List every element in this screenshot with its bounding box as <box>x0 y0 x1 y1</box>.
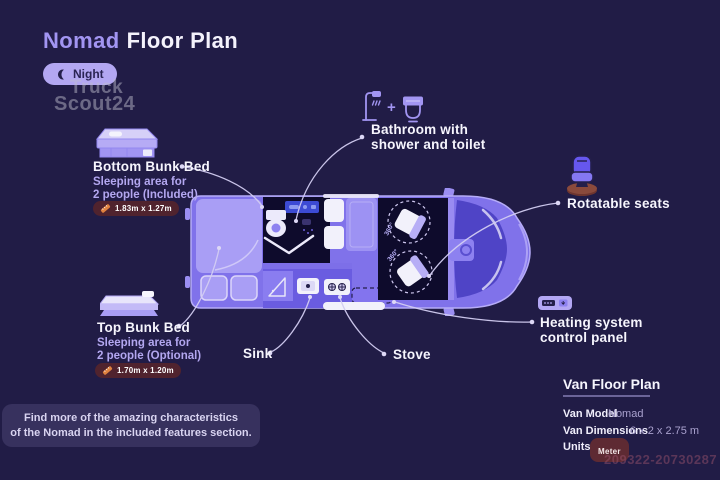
rotatable-seats-label: Rotatable seats <box>567 196 670 211</box>
bottom-bunk-desc-2: 2 people (Included) <box>93 188 198 202</box>
van-dimensions-value: 6 x 2 x 2.75 m <box>630 425 699 437</box>
dinette-table <box>346 198 377 251</box>
window-detail <box>303 205 307 209</box>
van-model-value: Nomad <box>608 408 643 420</box>
page-title: NomadFloor Plan <box>43 28 238 54</box>
top-bunk-title: Top Bunk Bed <box>97 320 190 335</box>
top-bunk-dimensions: 1.70m x 1.20m <box>117 366 174 375</box>
note-line-1: Find more of the amazing characteristics <box>2 411 260 426</box>
van-floorplan-illustration: 360° 360° <box>185 188 535 316</box>
shower-head <box>302 219 311 225</box>
info-panel-title: Van Floor Plan <box>563 376 660 392</box>
toilet-tank <box>266 210 286 220</box>
note-line-2: of the Nomad in the included features se… <box>2 426 260 441</box>
bathroom-label-1: Bathroom with <box>371 122 468 137</box>
shower-drop <box>311 229 313 231</box>
note-box: Find more of the amazing characteristics… <box>2 404 260 447</box>
tail-light-icon <box>185 276 190 288</box>
pillow <box>201 276 227 300</box>
dinette-seat <box>324 226 344 249</box>
bottom-bunk-desc-1: Sleeping area for <box>93 175 186 189</box>
bottom-bunk-dimensions-badge: 1.83m x 1.27m <box>93 201 179 216</box>
page-title-model: Nomad <box>43 28 120 53</box>
page-title-rest: Floor Plan <box>127 28 239 53</box>
bottom-bunk-dimensions: 1.83m x 1.27m <box>115 204 172 213</box>
rotatable-seat-icon <box>565 154 599 196</box>
side-window <box>323 194 379 198</box>
shower-drop <box>303 229 305 231</box>
counter-edge <box>263 263 352 269</box>
listing-id-watermark: 209322-20730287 <box>604 452 717 467</box>
plus-sign: + <box>387 99 396 116</box>
drain-dot <box>272 290 274 292</box>
entry-step <box>323 302 385 310</box>
shower-icon <box>362 89 384 123</box>
pillow <box>231 276 257 300</box>
window-detail <box>289 205 299 209</box>
sink-drain <box>306 284 310 288</box>
ruler-icon <box>100 203 111 214</box>
toilet-seat <box>272 224 281 233</box>
top-bunk-dimensions-badge: 1.70m x 1.20m <box>95 363 181 378</box>
tail-light-icon <box>185 208 190 220</box>
units-label: Units <box>563 441 591 453</box>
info-panel-divider <box>563 395 650 397</box>
stove-label: Stove <box>393 347 431 362</box>
moon-icon <box>56 68 68 81</box>
top-bunk-desc-1: Sleeping area for <box>97 336 190 350</box>
bottom-bunk-bed-icon <box>95 126 159 160</box>
stove-unit <box>324 279 350 295</box>
dinette-seat <box>324 199 344 222</box>
sink-label: Sink <box>243 346 272 361</box>
top-bunk-desc-2: 2 people (Optional) <box>97 349 201 363</box>
heating-label-1: Heating system <box>540 315 643 330</box>
top-bunk-bed-icon <box>100 287 160 319</box>
toilet-icon <box>399 95 427 123</box>
heating-label-2: control panel <box>540 330 627 345</box>
heating-panel-icon <box>538 296 572 310</box>
bottom-bunk-title: Bottom Bunk Bed <box>93 159 210 174</box>
shower-drop <box>307 232 309 234</box>
rear-bed <box>196 199 262 273</box>
watermark-truckscout-line2: Scout24 <box>54 93 135 116</box>
window-detail <box>311 205 316 209</box>
floor-plan-screen: NomadFloor Plan Night Truck Scout24 <box>0 0 720 480</box>
ruler-icon <box>102 365 113 376</box>
bathroom-label-2: shower and toilet <box>371 137 485 152</box>
